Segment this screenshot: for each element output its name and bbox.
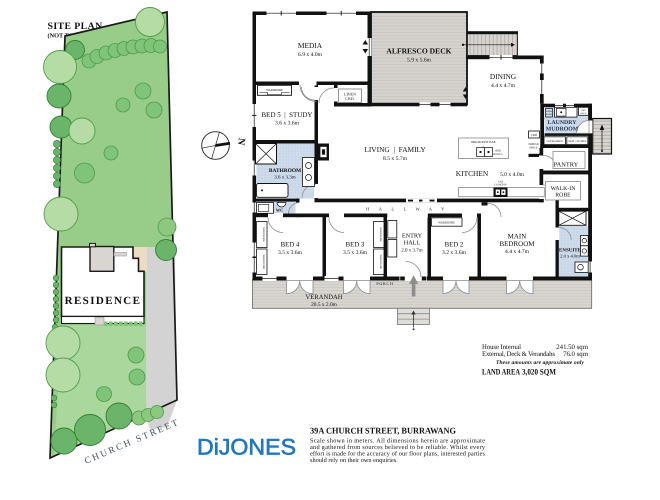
svg-text:WC: WC — [276, 208, 283, 213]
svg-text:SEAT | STORES: SEAT | STORES — [568, 140, 587, 143]
svg-text:BEDROOM: BEDROOM — [499, 240, 535, 248]
svg-text:ROBE: ROBE — [555, 193, 571, 199]
svg-text:241.50 sqm: 241.50 sqm — [556, 344, 588, 351]
svg-text:BATHROOM: BATHROOM — [269, 168, 301, 174]
svg-text:WASH: WASH — [546, 110, 553, 113]
svg-text:5.0 x 4.0m: 5.0 x 4.0m — [500, 172, 525, 178]
svg-text:These amounts are approximate: These amounts are approximate only — [496, 360, 585, 366]
svg-text:DiJONES: DiJONES — [197, 435, 296, 460]
svg-text:6.9 x 4.0m: 6.9 x 4.0m — [298, 52, 323, 58]
svg-text:2.0 x 4.0m: 2.0 x 4.0m — [560, 254, 580, 259]
svg-text:RACK: RACK — [580, 112, 586, 115]
svg-text:8.5 x 5.7m: 8.5 x 5.7m — [383, 156, 408, 162]
svg-text:BED 4: BED 4 — [281, 242, 300, 249]
svg-text:3.6 x 3.3m: 3.6 x 3.3m — [274, 175, 296, 181]
svg-text:WARDROBE: WARDROBE — [262, 255, 265, 270]
svg-text:4.4 x 4.7m: 4.4 x 4.7m — [505, 249, 530, 255]
svg-text:HALLWAY: HALLWAY — [366, 207, 454, 212]
svg-text:DINING: DINING — [490, 72, 517, 81]
svg-text:PANTRY: PANTRY — [554, 162, 579, 169]
svg-text:ALFRESCO DECK: ALFRESCO DECK — [386, 47, 451, 56]
svg-text:BED 2: BED 2 — [445, 242, 464, 249]
svg-text:COOKTOP: COOKTOP — [494, 184, 507, 187]
svg-text:4.4 x 4.7m: 4.4 x 4.7m — [491, 83, 516, 89]
svg-text:WALK-IN: WALK-IN — [551, 186, 577, 192]
svg-text:DRY: DRY — [581, 109, 586, 112]
svg-text:MEDIA: MEDIA — [298, 41, 323, 50]
svg-text:CUPBOARDS: CUPBOARDS — [547, 140, 564, 143]
svg-text:External, Deck & Verandahs: External, Deck & Verandahs — [482, 351, 555, 358]
svg-text:3,020 SQM: 3,020 SQM — [522, 367, 556, 376]
svg-text:WARDROBE: WARDROBE — [262, 227, 265, 242]
svg-text:BOWLS: BOWLS — [493, 153, 503, 156]
svg-text:3.5 x 3.6m: 3.5 x 3.6m — [278, 250, 303, 256]
svg-text:WARDROBE: WARDROBE — [379, 255, 382, 270]
svg-text:LIVING | FAMILY: LIVING | FAMILY — [364, 145, 426, 154]
svg-text:39A CHURCH STREET, BURRAWANG: 39A CHURCH STREET, BURRAWANG — [310, 426, 456, 436]
svg-text:2.0 x 3.7m: 2.0 x 3.7m — [401, 248, 423, 254]
svg-text:3.6 x 3.6m: 3.6 x 3.6m — [275, 121, 300, 127]
svg-text:PORCH: PORCH — [376, 281, 393, 286]
svg-text:CBD.: CBD. — [345, 96, 354, 101]
svg-text:SPACE: SPACE — [529, 147, 538, 150]
svg-text:76.0 sqm: 76.0 sqm — [563, 351, 589, 358]
svg-text:WARDROBE: WARDROBE — [438, 220, 455, 224]
svg-text:5.9 x 5.6m: 5.9 x 5.6m — [407, 58, 432, 64]
svg-text:VERANDAH: VERANDAH — [306, 294, 343, 301]
svg-text:BED 3: BED 3 — [346, 242, 365, 249]
svg-text:RESIDENCE: RESIDENCE — [65, 295, 142, 307]
svg-text:LAUNDRY: LAUNDRY — [548, 120, 578, 126]
svg-text:ENTRY: ENTRY — [402, 233, 423, 240]
svg-text:KITCHEN: KITCHEN — [456, 169, 489, 178]
svg-text:BASIN: BASIN — [546, 113, 553, 116]
svg-text:LAND AREA: LAND AREA — [482, 367, 520, 376]
svg-text:MUDROOM: MUDROOM — [546, 127, 579, 133]
svg-text:should rely on their own enqui: should rely on their own enquiries. — [310, 457, 398, 464]
svg-text:BREAKFAST BAR: BREAKFAST BAR — [471, 140, 495, 144]
svg-text:HALL: HALL — [404, 240, 421, 247]
svg-text:WARDROBE: WARDROBE — [379, 227, 382, 242]
svg-text:BED 5 | STUDY: BED 5 | STUDY — [262, 111, 313, 119]
svg-text:3.2 x 3.6m: 3.2 x 3.6m — [442, 250, 467, 256]
svg-text:House Internal: House Internal — [482, 344, 521, 351]
svg-text:WARDROBE: WARDROBE — [266, 88, 283, 92]
svg-text:3.5 x 3.6m: 3.5 x 3.6m — [343, 250, 368, 256]
svg-text:20.5 x 2.0m: 20.5 x 2.0m — [311, 302, 338, 308]
svg-text:CBD: CBD — [531, 133, 538, 137]
